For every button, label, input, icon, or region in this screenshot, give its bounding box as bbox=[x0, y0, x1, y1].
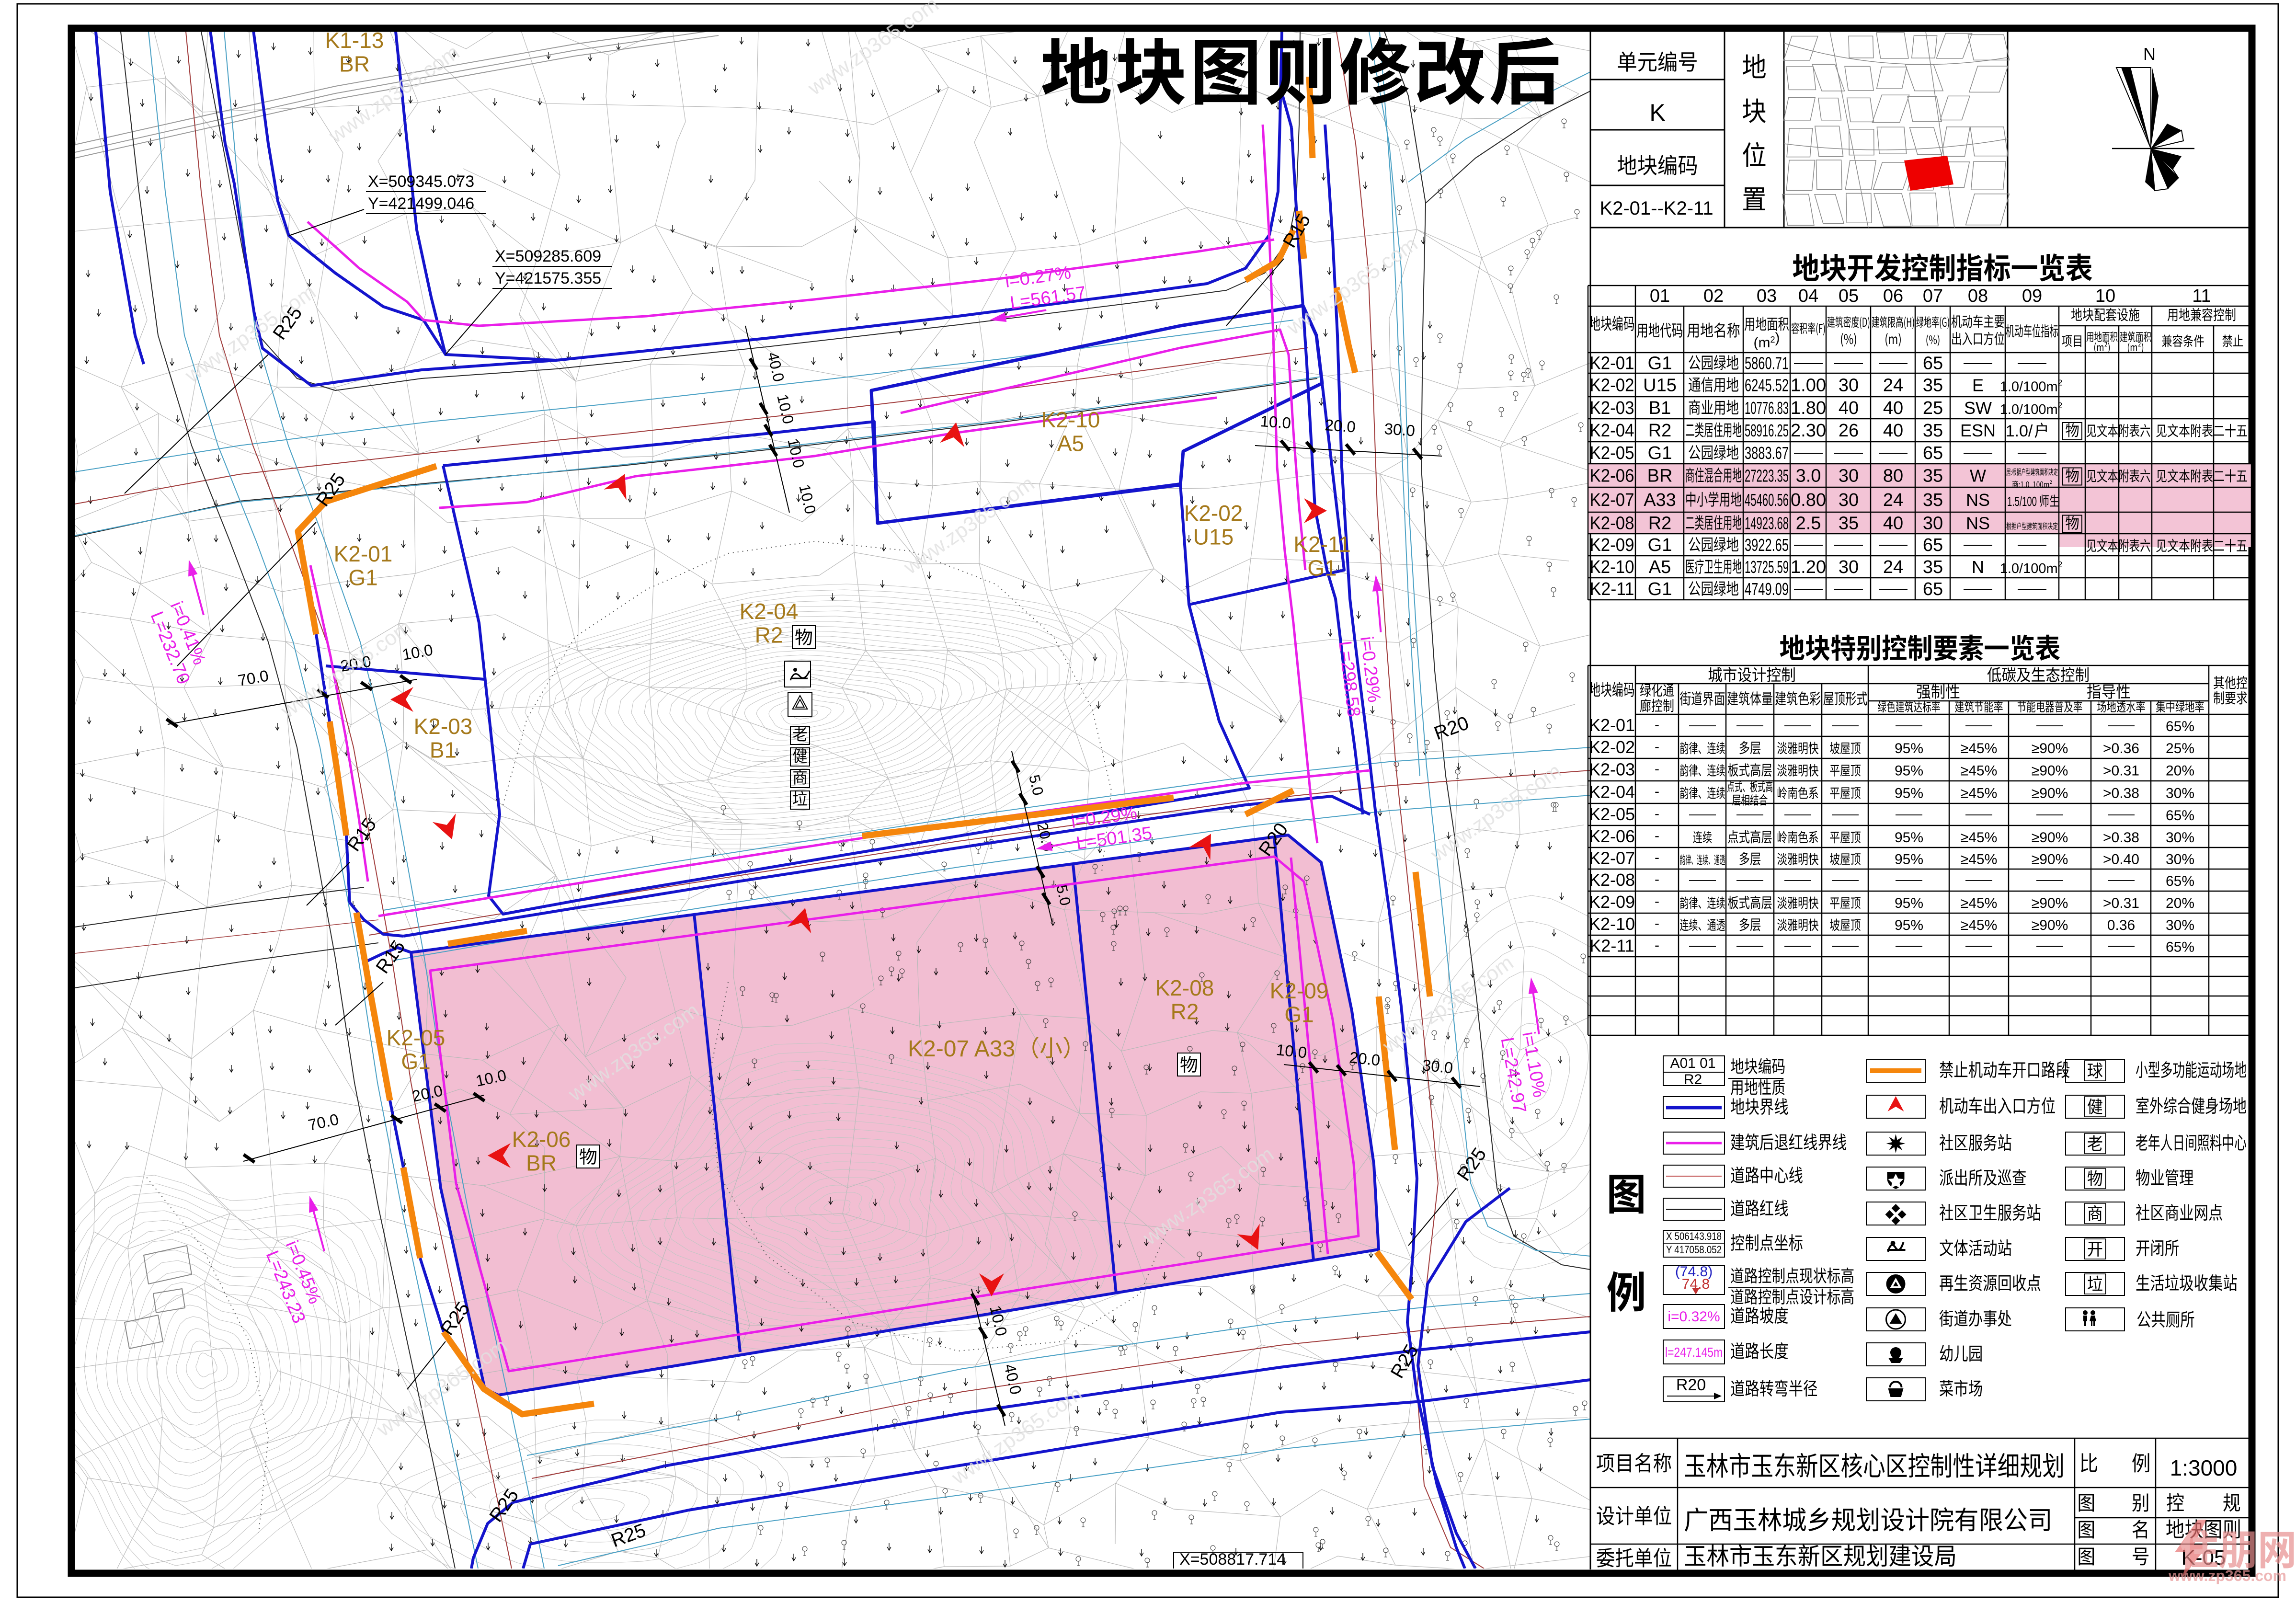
svg-text:10.0: 10.0 bbox=[1260, 412, 1292, 432]
svg-text:K2-04: K2-04 bbox=[1589, 782, 1635, 802]
svg-text:-: - bbox=[1655, 761, 1659, 777]
svg-text:Y=421499.046: Y=421499.046 bbox=[368, 195, 474, 213]
svg-text:-: - bbox=[1655, 717, 1659, 733]
svg-text:——: —— bbox=[1879, 445, 1908, 460]
svg-text:K: K bbox=[1649, 99, 1665, 126]
svg-text:95%: 95% bbox=[1895, 852, 1923, 868]
svg-text:——: —— bbox=[1784, 938, 1811, 953]
svg-text:26: 26 bbox=[1839, 421, 1859, 441]
svg-text:X=508817.714: X=508817.714 bbox=[1179, 1550, 1286, 1569]
svg-text:08: 08 bbox=[1968, 286, 1988, 306]
svg-text:K2-11: K2-11 bbox=[1293, 532, 1350, 557]
svg-text:B1: B1 bbox=[1649, 398, 1671, 418]
svg-text:——: —— bbox=[1834, 355, 1863, 371]
svg-text:≥90%: ≥90% bbox=[2032, 852, 2068, 868]
svg-text:——: —— bbox=[1896, 872, 1922, 887]
svg-text:24: 24 bbox=[1883, 490, 1903, 510]
svg-text:95%: 95% bbox=[1895, 763, 1923, 779]
svg-text:30: 30 bbox=[1839, 557, 1859, 577]
svg-text:35: 35 bbox=[1923, 466, 1943, 486]
svg-text:K2-10: K2-10 bbox=[1589, 914, 1635, 934]
svg-text:——: —— bbox=[1784, 872, 1811, 887]
svg-text:——: —— bbox=[2018, 537, 2046, 552]
svg-text:65: 65 bbox=[1923, 535, 1943, 555]
svg-text:95%: 95% bbox=[1895, 741, 1923, 756]
svg-text:≥90%: ≥90% bbox=[2032, 830, 2068, 846]
svg-text:K2-01--K2-11: K2-01--K2-11 bbox=[1599, 198, 1713, 219]
svg-text:40: 40 bbox=[1883, 514, 1903, 534]
svg-text:K2-05: K2-05 bbox=[387, 1025, 445, 1050]
svg-text:≥90%: ≥90% bbox=[2032, 763, 2068, 779]
svg-text:3883.67: 3883.67 bbox=[1745, 443, 1789, 463]
svg-text:i=0.32%: i=0.32% bbox=[1668, 1309, 1720, 1325]
svg-text:U15: U15 bbox=[1643, 376, 1677, 396]
svg-text:3.0: 3.0 bbox=[1796, 466, 1821, 486]
svg-text:-: - bbox=[1655, 850, 1659, 866]
svg-text:0.80: 0.80 bbox=[1791, 490, 1826, 510]
svg-text:X=509345.073: X=509345.073 bbox=[368, 172, 474, 191]
svg-text:G1: G1 bbox=[1648, 535, 1672, 555]
svg-text:——: —— bbox=[2108, 806, 2135, 821]
svg-text:BR: BR bbox=[339, 52, 370, 77]
svg-text:05: 05 bbox=[1839, 286, 1859, 306]
svg-text:40: 40 bbox=[1883, 421, 1903, 441]
svg-text:80: 80 bbox=[1883, 466, 1903, 486]
svg-text:30: 30 bbox=[1839, 466, 1859, 486]
svg-text:65: 65 bbox=[1923, 579, 1943, 599]
svg-text:>0.36: >0.36 bbox=[2103, 741, 2139, 756]
svg-text:-: - bbox=[1655, 916, 1659, 931]
svg-text:——: —— bbox=[1689, 717, 1716, 732]
svg-text:1.0/: 1.0/ bbox=[2006, 422, 2033, 440]
svg-text:65: 65 bbox=[1923, 443, 1943, 463]
svg-text:25%: 25% bbox=[2166, 741, 2194, 756]
svg-text:X=509285.609: X=509285.609 bbox=[495, 247, 601, 265]
svg-text:K2-09: K2-09 bbox=[1589, 892, 1635, 912]
svg-text:K2-10: K2-10 bbox=[1590, 557, 1634, 577]
svg-text:20.0: 20.0 bbox=[1325, 416, 1357, 435]
svg-text:Y=421575.355: Y=421575.355 bbox=[495, 269, 601, 287]
svg-text:K2-03: K2-03 bbox=[1590, 398, 1634, 418]
svg-text:——: —— bbox=[2108, 938, 2135, 953]
svg-text:K2-08: K2-08 bbox=[1589, 870, 1635, 890]
svg-text:——: —— bbox=[1689, 872, 1716, 887]
svg-text:≥45%: ≥45% bbox=[1961, 852, 1998, 868]
svg-text:>0.40: >0.40 bbox=[2103, 852, 2139, 868]
svg-text:——: —— bbox=[2036, 806, 2063, 821]
svg-text:G1: G1 bbox=[401, 1049, 430, 1074]
svg-text:K2-06: K2-06 bbox=[1590, 466, 1634, 486]
svg-text:NS: NS bbox=[1966, 514, 1990, 533]
svg-text:30.0: 30.0 bbox=[1421, 1056, 1454, 1077]
svg-text:E: E bbox=[1972, 376, 1984, 395]
svg-text:>0.31: >0.31 bbox=[2103, 763, 2139, 779]
svg-text:——: —— bbox=[1832, 717, 1859, 732]
svg-text:≥45%: ≥45% bbox=[1961, 917, 1998, 933]
svg-text:02: 02 bbox=[1703, 286, 1724, 306]
svg-text:Y 417058.052: Y 417058.052 bbox=[1666, 1244, 1722, 1256]
svg-text:95%: 95% bbox=[1895, 830, 1923, 846]
svg-text:BR: BR bbox=[1647, 466, 1673, 486]
svg-text:≥45%: ≥45% bbox=[1961, 830, 1998, 846]
svg-text:——: —— bbox=[1965, 872, 1992, 887]
svg-text:——: —— bbox=[1689, 938, 1716, 953]
svg-text:K2-06: K2-06 bbox=[512, 1127, 571, 1152]
svg-text:20.0: 20.0 bbox=[1348, 1048, 1381, 1069]
svg-text:R2: R2 bbox=[1684, 1072, 1702, 1088]
svg-text:——: —— bbox=[2036, 938, 2063, 953]
svg-text:95%: 95% bbox=[1895, 895, 1923, 911]
svg-text:G1: G1 bbox=[348, 565, 377, 590]
svg-text:K2-09: K2-09 bbox=[1590, 535, 1634, 555]
svg-text:10.0: 10.0 bbox=[1275, 1041, 1308, 1062]
svg-text:1.0/100m2: 1.0/100m2 bbox=[2000, 401, 2063, 417]
svg-text:14923.68: 14923.68 bbox=[1745, 514, 1789, 533]
svg-text:——: —— bbox=[1896, 806, 1922, 821]
svg-text:3922.65: 3922.65 bbox=[1745, 535, 1789, 555]
svg-text:R2: R2 bbox=[755, 623, 783, 648]
svg-text:1:3000: 1:3000 bbox=[2170, 1455, 2238, 1480]
svg-text:10: 10 bbox=[2095, 286, 2115, 306]
svg-text:≥90%: ≥90% bbox=[2032, 917, 2068, 933]
svg-text:——: —— bbox=[1736, 717, 1763, 732]
svg-text:1.80: 1.80 bbox=[1791, 398, 1826, 418]
svg-text:65%: 65% bbox=[2166, 719, 2194, 734]
svg-text:R2: R2 bbox=[1171, 999, 1199, 1024]
svg-text:-: - bbox=[1655, 828, 1659, 844]
svg-text:K2-07: K2-07 bbox=[1589, 848, 1635, 868]
svg-text:K2-01: K2-01 bbox=[1589, 715, 1635, 735]
svg-text:K2-04: K2-04 bbox=[1590, 421, 1634, 441]
svg-text:B1: B1 bbox=[430, 738, 457, 763]
svg-text:K2-07 A33: K2-07 A33 bbox=[908, 1036, 1015, 1062]
svg-text:R2: R2 bbox=[1648, 421, 1672, 441]
svg-text:65%: 65% bbox=[2166, 873, 2194, 889]
svg-text:K2-08: K2-08 bbox=[1155, 975, 1214, 1000]
svg-text:——: —— bbox=[1964, 355, 1992, 371]
svg-text:≥45%: ≥45% bbox=[1961, 741, 1998, 756]
svg-text:-: - bbox=[1655, 739, 1659, 755]
svg-text:——: —— bbox=[1834, 581, 1863, 596]
svg-text:35: 35 bbox=[1839, 514, 1859, 534]
svg-text:——: —— bbox=[2018, 581, 2046, 596]
svg-text:K2-02: K2-02 bbox=[1590, 376, 1634, 396]
svg-text:30: 30 bbox=[1923, 514, 1943, 534]
svg-text:G1: G1 bbox=[1648, 354, 1672, 374]
svg-text:07: 07 bbox=[1923, 286, 1943, 306]
svg-text:95%: 95% bbox=[1895, 786, 1923, 801]
svg-text:25: 25 bbox=[1923, 398, 1943, 418]
svg-text:11: 11 bbox=[2192, 286, 2211, 306]
svg-text:30%: 30% bbox=[2166, 852, 2194, 868]
svg-text:——: —— bbox=[2036, 717, 2063, 732]
svg-text:A33: A33 bbox=[1644, 490, 1676, 510]
svg-text:K2-04: K2-04 bbox=[740, 599, 799, 624]
svg-text:N: N bbox=[2143, 44, 2156, 64]
svg-text:35: 35 bbox=[1923, 421, 1943, 441]
svg-text:——: —— bbox=[1794, 355, 1823, 371]
svg-text:——: —— bbox=[2018, 355, 2046, 371]
svg-text:——: —— bbox=[1964, 581, 1992, 596]
svg-text:03: 03 bbox=[1757, 286, 1777, 306]
svg-text:——: —— bbox=[1784, 717, 1811, 732]
svg-text:30: 30 bbox=[1839, 490, 1859, 510]
svg-text:≥45%: ≥45% bbox=[1961, 895, 1998, 911]
svg-text:——: —— bbox=[1834, 445, 1863, 460]
svg-text:30: 30 bbox=[1839, 376, 1859, 396]
svg-text:——: —— bbox=[1689, 806, 1716, 821]
svg-text:G1: G1 bbox=[1307, 556, 1336, 581]
svg-text:——: —— bbox=[1879, 355, 1908, 371]
svg-text:27223.35: 27223.35 bbox=[1745, 466, 1789, 486]
svg-text:01: 01 bbox=[1650, 286, 1670, 306]
svg-text:1.0/100m2: 1.0/100m2 bbox=[2000, 560, 2063, 576]
svg-text:30%: 30% bbox=[2166, 917, 2194, 933]
svg-text:5860.71: 5860.71 bbox=[1745, 354, 1789, 373]
svg-text:-: - bbox=[1655, 893, 1659, 909]
svg-text:>0.31: >0.31 bbox=[2103, 895, 2139, 911]
svg-text:K2-01: K2-01 bbox=[1590, 354, 1634, 374]
svg-text:——: —— bbox=[1794, 581, 1823, 596]
svg-text:65: 65 bbox=[1923, 354, 1943, 374]
svg-text:A01 01: A01 01 bbox=[1670, 1055, 1715, 1071]
svg-text:2.5: 2.5 bbox=[1796, 514, 1821, 534]
svg-text:——: —— bbox=[2018, 445, 2046, 460]
svg-text:——: —— bbox=[1879, 537, 1908, 552]
svg-text:www.zp365.com: www.zp365.com bbox=[2168, 1567, 2286, 1584]
svg-text:SW: SW bbox=[1964, 398, 1992, 418]
svg-text:——: —— bbox=[1965, 938, 1992, 953]
svg-text:G1: G1 bbox=[1648, 443, 1672, 463]
svg-text:≥90%: ≥90% bbox=[2032, 786, 2068, 801]
svg-text:-: - bbox=[1655, 871, 1659, 887]
svg-text:30%: 30% bbox=[2166, 830, 2194, 846]
svg-text:K2-05: K2-05 bbox=[1590, 443, 1634, 463]
svg-text:G1: G1 bbox=[1284, 1002, 1314, 1027]
svg-text:≥45%: ≥45% bbox=[1961, 786, 1998, 801]
svg-text:0.36: 0.36 bbox=[2107, 917, 2135, 933]
svg-text:35: 35 bbox=[1923, 490, 1943, 510]
svg-text:20%: 20% bbox=[2166, 763, 2194, 779]
svg-text:30%: 30% bbox=[2166, 786, 2194, 801]
svg-text:A5: A5 bbox=[1649, 557, 1671, 577]
svg-text:1.20: 1.20 bbox=[1791, 557, 1826, 577]
svg-text:95%: 95% bbox=[1895, 917, 1923, 933]
svg-text:04: 04 bbox=[1798, 286, 1818, 306]
svg-text:24: 24 bbox=[1883, 376, 1903, 396]
svg-text:K2-02: K2-02 bbox=[1184, 501, 1243, 526]
svg-text:——: —— bbox=[2036, 872, 2063, 887]
svg-text:l=247.145m: l=247.145m bbox=[1665, 1345, 1723, 1360]
svg-text:——: —— bbox=[1965, 806, 1992, 821]
svg-text:ESN: ESN bbox=[1960, 421, 1996, 440]
svg-text:≥45%: ≥45% bbox=[1961, 763, 1998, 779]
svg-text:——: —— bbox=[1964, 445, 1992, 460]
svg-text:K2-09: K2-09 bbox=[1270, 978, 1329, 1003]
svg-text:-: - bbox=[1655, 806, 1659, 822]
svg-text:K2-03: K2-03 bbox=[414, 714, 473, 739]
svg-text:2.30: 2.30 bbox=[1791, 421, 1826, 441]
svg-text:——: —— bbox=[1794, 537, 1823, 552]
svg-text:45460.56: 45460.56 bbox=[1745, 490, 1789, 510]
svg-text:——: —— bbox=[1784, 806, 1811, 821]
svg-text:K2-02: K2-02 bbox=[1589, 737, 1635, 757]
svg-text:K2-05: K2-05 bbox=[1589, 804, 1635, 824]
svg-text:NS: NS bbox=[1966, 490, 1990, 510]
svg-text:65%: 65% bbox=[2166, 808, 2194, 824]
svg-text:K2-11: K2-11 bbox=[1590, 579, 1634, 599]
svg-text:1.0/100m2: 1.0/100m2 bbox=[2000, 378, 2063, 395]
svg-text:——: —— bbox=[1832, 938, 1859, 953]
svg-text:10776.83: 10776.83 bbox=[1745, 398, 1789, 418]
svg-text:-: - bbox=[1655, 784, 1659, 800]
svg-text:24: 24 bbox=[1883, 557, 1903, 577]
svg-text:——: —— bbox=[2108, 717, 2135, 732]
svg-text:W: W bbox=[1970, 466, 1986, 486]
svg-text:20%: 20% bbox=[2166, 895, 2194, 911]
svg-text:>0.38: >0.38 bbox=[2103, 786, 2139, 801]
svg-text:——: —— bbox=[1736, 806, 1763, 821]
svg-text:K2-03: K2-03 bbox=[1589, 760, 1635, 779]
svg-text:——: —— bbox=[1832, 872, 1859, 887]
svg-text:——: —— bbox=[1794, 445, 1823, 460]
svg-text:U15: U15 bbox=[1193, 525, 1234, 550]
svg-text:4749.09: 4749.09 bbox=[1745, 579, 1789, 599]
svg-text:K2-07: K2-07 bbox=[1590, 490, 1634, 510]
svg-text:——: —— bbox=[1896, 938, 1922, 953]
svg-text:N: N bbox=[1972, 557, 1984, 577]
svg-text:35: 35 bbox=[1923, 557, 1943, 577]
svg-text:——: —— bbox=[2108, 872, 2135, 887]
svg-text:35: 35 bbox=[1923, 376, 1943, 396]
svg-text:X 506143.918: X 506143.918 bbox=[1666, 1230, 1722, 1242]
svg-text:58916.25: 58916.25 bbox=[1745, 421, 1789, 440]
svg-text:——: —— bbox=[1965, 717, 1992, 732]
svg-text:G1: G1 bbox=[1648, 579, 1672, 599]
svg-text:>0.38: >0.38 bbox=[2103, 830, 2139, 846]
svg-text:——: —— bbox=[1879, 581, 1908, 596]
svg-text:09: 09 bbox=[2022, 286, 2042, 306]
svg-text:≥90%: ≥90% bbox=[2032, 741, 2068, 756]
svg-text:A5: A5 bbox=[1057, 431, 1084, 456]
svg-text:1.5/100: 1.5/100 bbox=[2007, 494, 2037, 509]
svg-text:——: —— bbox=[1834, 537, 1863, 552]
svg-text:R2: R2 bbox=[1648, 514, 1672, 534]
svg-text:65%: 65% bbox=[2166, 939, 2194, 955]
svg-text:K2-08: K2-08 bbox=[1590, 514, 1634, 534]
svg-text:——: —— bbox=[1736, 938, 1763, 953]
svg-text:40: 40 bbox=[1839, 398, 1859, 418]
svg-text:1.00: 1.00 bbox=[1791, 376, 1826, 396]
svg-text:K2-10: K2-10 bbox=[1041, 407, 1100, 432]
svg-text:R20: R20 bbox=[1676, 1376, 1706, 1394]
svg-text:6245.52: 6245.52 bbox=[1745, 376, 1789, 395]
svg-text:——: —— bbox=[1832, 806, 1859, 821]
svg-text:≥90%: ≥90% bbox=[2032, 895, 2068, 911]
svg-text:40: 40 bbox=[1883, 398, 1903, 418]
svg-text:——: —— bbox=[1736, 872, 1763, 887]
svg-text:——: —— bbox=[1896, 717, 1922, 732]
svg-text:13725.59: 13725.59 bbox=[1745, 557, 1789, 577]
svg-text:06: 06 bbox=[1883, 286, 1903, 306]
svg-text:K2-01: K2-01 bbox=[334, 541, 393, 566]
svg-text:-: - bbox=[1655, 938, 1659, 953]
svg-text:——: —— bbox=[1964, 537, 1992, 552]
svg-text:K2-11: K2-11 bbox=[1589, 936, 1634, 956]
svg-text:K2-06: K2-06 bbox=[1589, 826, 1635, 846]
svg-text:BR: BR bbox=[526, 1151, 557, 1176]
svg-text:30.0: 30.0 bbox=[1384, 420, 1416, 439]
